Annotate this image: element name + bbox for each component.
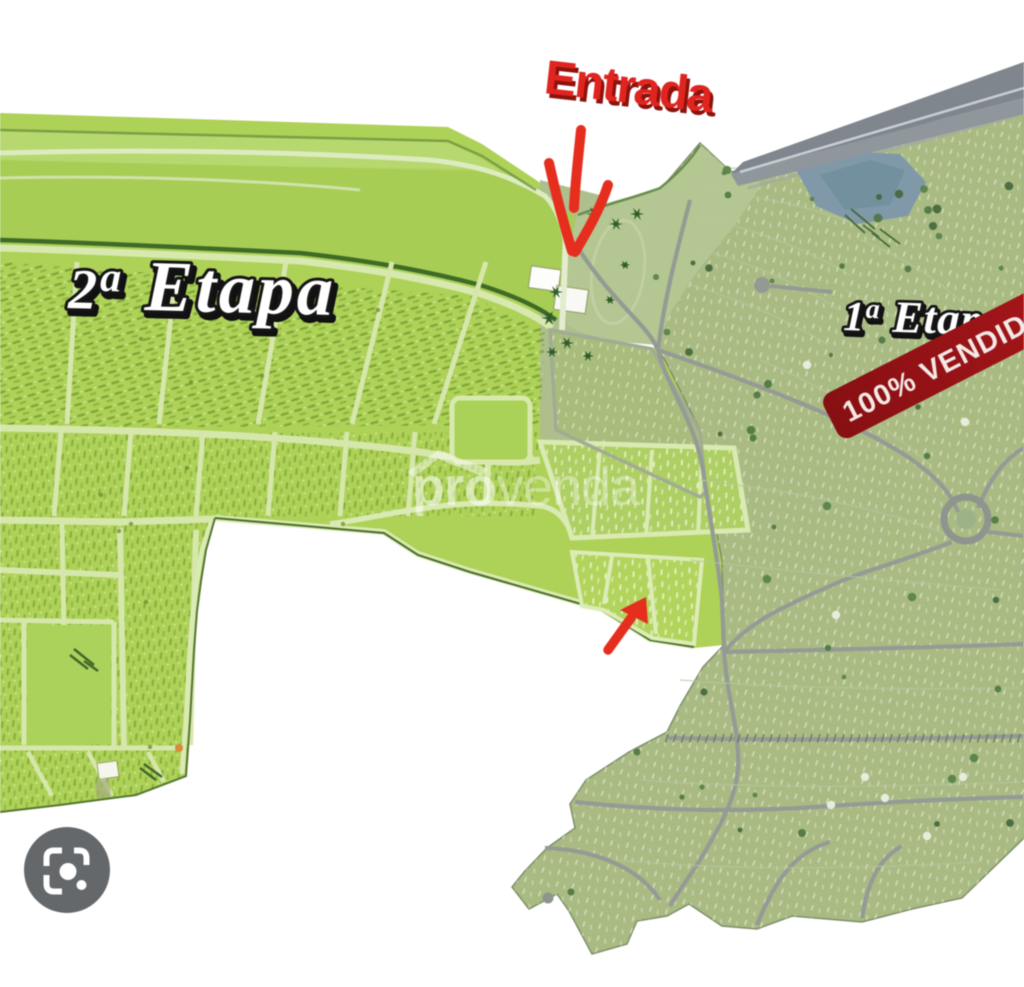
svg-text:venda: venda — [497, 457, 641, 517]
svg-text:pro: pro — [412, 457, 496, 517]
